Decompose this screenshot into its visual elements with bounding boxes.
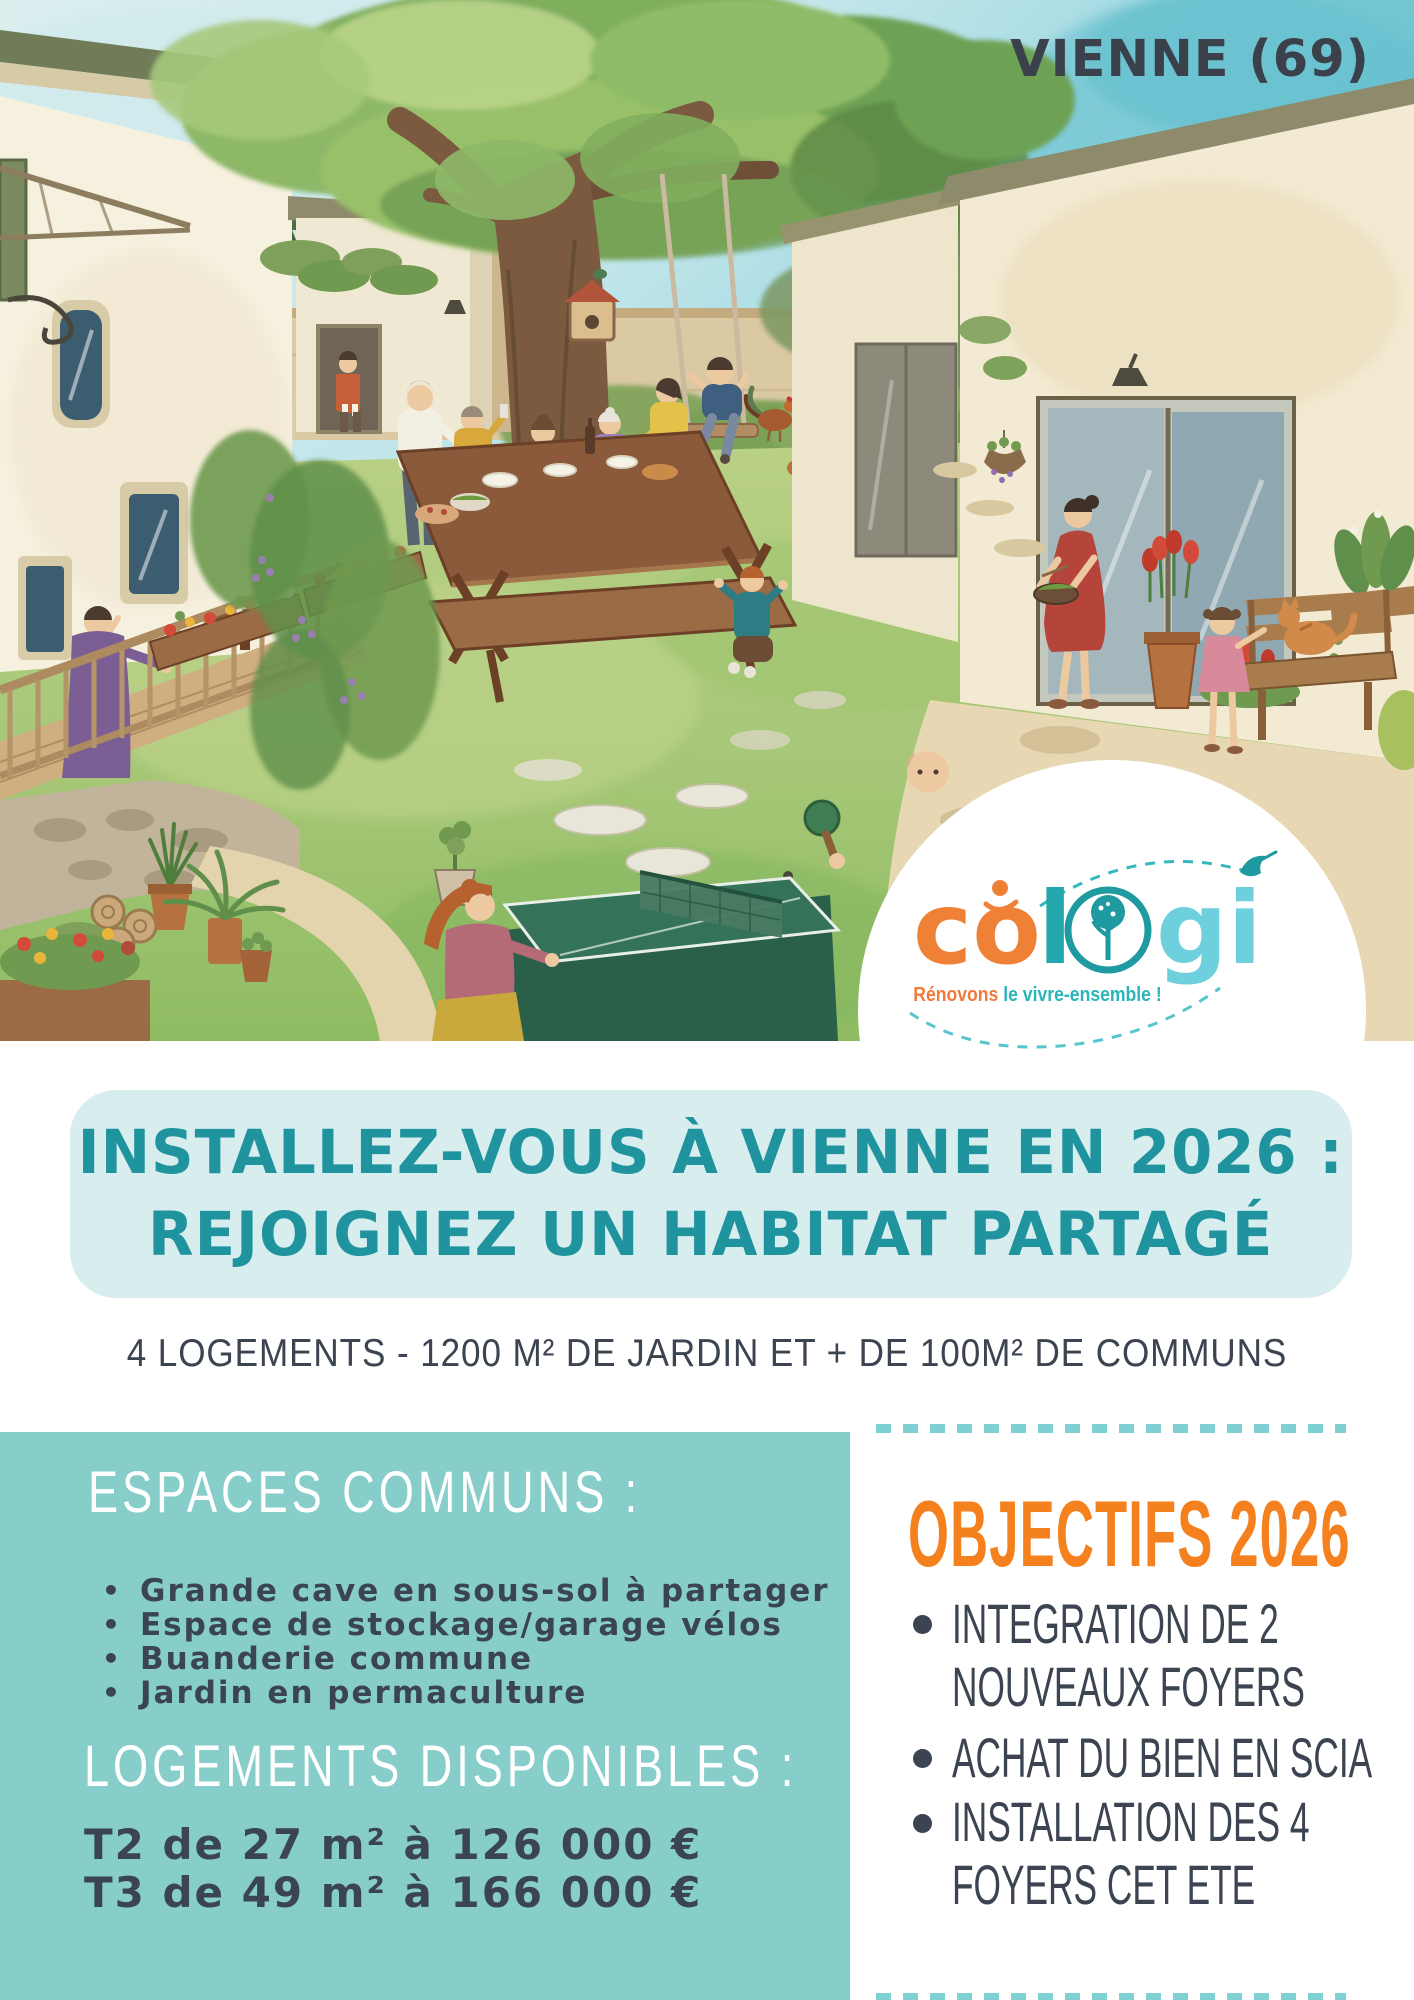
cologi-logo: colgi Rénovons le vivre-ensemble ! — [880, 818, 1340, 1050]
objective-item: ACHAT DU BIEN EN SCIA — [952, 1726, 1414, 1789]
bullet-dot: • — [102, 1642, 140, 1676]
cologi-logo-art: colgi — [880, 818, 1340, 1050]
location-label: VIENNE (69) — [930, 30, 1370, 89]
left-panel: ESPACES COMMUNS : •Grande cave en sous-s… — [0, 1432, 850, 2000]
list-item: •Buanderie commune — [102, 1642, 830, 1676]
subtitle: 4 LOGEMENTS - 1200 M² DE JARDIN ET + DE … — [71, 1332, 1344, 1376]
logo-tagline: Rénovons le vivre-ensemble ! — [899, 984, 1176, 1007]
headline-line2: REJOIGNEZ UN HABITAT PARTAGÉ — [78, 1194, 1344, 1276]
headline-line1: INSTALLEZ-VOUS À VIENNE EN 2026 : — [78, 1112, 1344, 1194]
person-glyph-head — [992, 880, 1008, 896]
list-item: •Grande cave en sous-sol à partager — [102, 1574, 830, 1608]
objectives-heading: OBJECTIFS 2026 — [908, 1480, 1351, 1588]
headline: INSTALLEZ-VOUS À VIENNE EN 2026 : REJOIG… — [78, 1112, 1344, 1276]
offer-t2: T2 de 27 m² à 126 000 € — [84, 1820, 702, 1869]
list-item: •Jardin en permaculture — [102, 1676, 830, 1710]
bullet-dot: • — [102, 1574, 140, 1608]
list-item: •Espace de stockage/garage vélos — [102, 1608, 830, 1642]
common-spaces-heading: ESPACES COMMUNS : — [88, 1459, 641, 1526]
tagline-orange: Rénovons — [913, 984, 998, 1006]
dashed-divider-bottom — [876, 1993, 1346, 2000]
objective-bullet-dot — [913, 1615, 932, 1634]
common-spaces-list: •Grande cave en sous-sol à partager •Esp… — [102, 1574, 830, 1710]
tagline-teal: le vivre-ensemble ! — [998, 984, 1161, 1006]
flyer-poster: VIENNE (69) colgi — [0, 0, 1414, 2000]
bullet-dot: • — [102, 1676, 140, 1710]
offer-t3: T3 de 49 m² à 166 000 € — [84, 1868, 702, 1917]
dashed-divider-top — [876, 1424, 1346, 1433]
objective-item: INSTALLATION DES 4 FOYERS CET ETE — [952, 1790, 1414, 1916]
bullet-dot: • — [102, 1608, 140, 1642]
headline-box: INSTALLEZ-VOUS À VIENNE EN 2026 : REJOIG… — [70, 1090, 1352, 1298]
objective-bullet-dot — [913, 1814, 932, 1833]
objective-bullet-dot — [913, 1749, 932, 1768]
available-homes-heading: LOGEMENTS DISPONIBLES : — [84, 1733, 797, 1800]
objective-item: INTEGRATION DE 2 NOUVEAUX FOYERS — [952, 1592, 1414, 1718]
garden-illustration: VIENNE (69) colgi — [0, 0, 1414, 1041]
